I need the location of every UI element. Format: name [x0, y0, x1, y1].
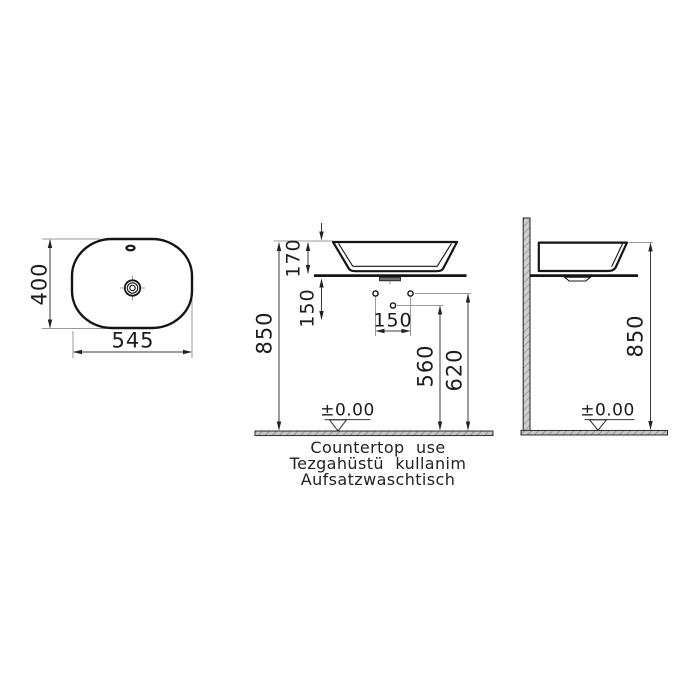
dim-170-label: 170: [285, 238, 304, 277]
wall-section: [523, 218, 530, 431]
dim-850-side-label: 850: [626, 314, 647, 357]
drain-fitting-front: [380, 277, 401, 281]
dim-560-label: 560: [416, 344, 437, 387]
overflow-slot: [127, 246, 135, 251]
hole-center: [390, 303, 395, 308]
caption-line-de: Aufsatzwaschtisch: [301, 472, 456, 488]
datum-label-front: ±0.00: [320, 403, 375, 420]
dim-150-horizontal-label: 150: [373, 311, 412, 330]
datum-symbol-side: [585, 420, 635, 431]
hole-left: [373, 291, 378, 296]
dim-620-label: 620: [444, 348, 465, 391]
datum-symbol-front: [325, 420, 371, 431]
datum-label-side: ±0.00: [580, 402, 635, 419]
hole-right: [408, 291, 413, 296]
technical-drawing-canvas: 400 545 170 850 150 150 560 620 ±0.00 85…: [0, 0, 700, 700]
floor-line-front: [255, 431, 493, 436]
dim-850-front-label: 850: [255, 311, 276, 354]
drain-fitting-side: [565, 277, 591, 281]
drawing-linework: [0, 0, 700, 700]
floor-line-side: [521, 430, 668, 435]
dim-545-label: 545: [111, 331, 154, 352]
basin-side-outline: [539, 243, 627, 271]
dim-400-label: 400: [30, 262, 51, 305]
dim-150-vertical-label: 150: [299, 288, 318, 327]
